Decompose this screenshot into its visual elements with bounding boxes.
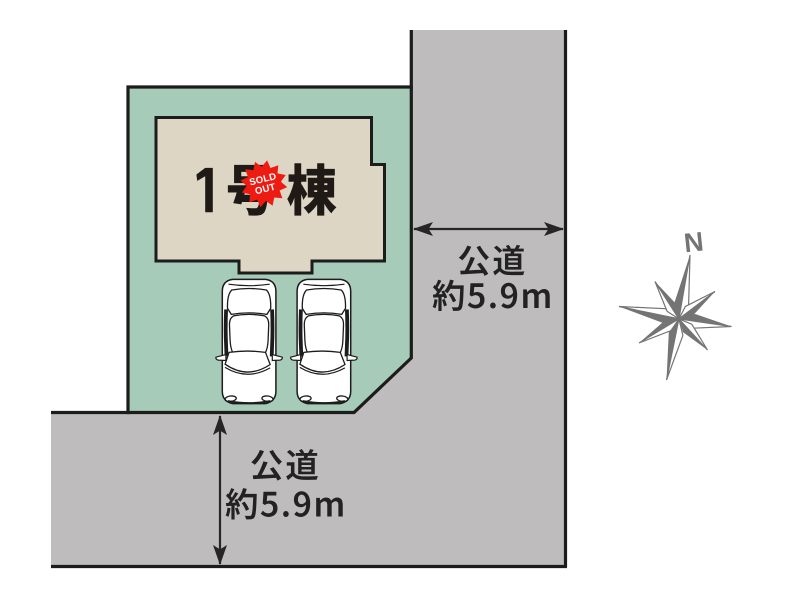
svg-text:N: N xyxy=(683,226,706,258)
